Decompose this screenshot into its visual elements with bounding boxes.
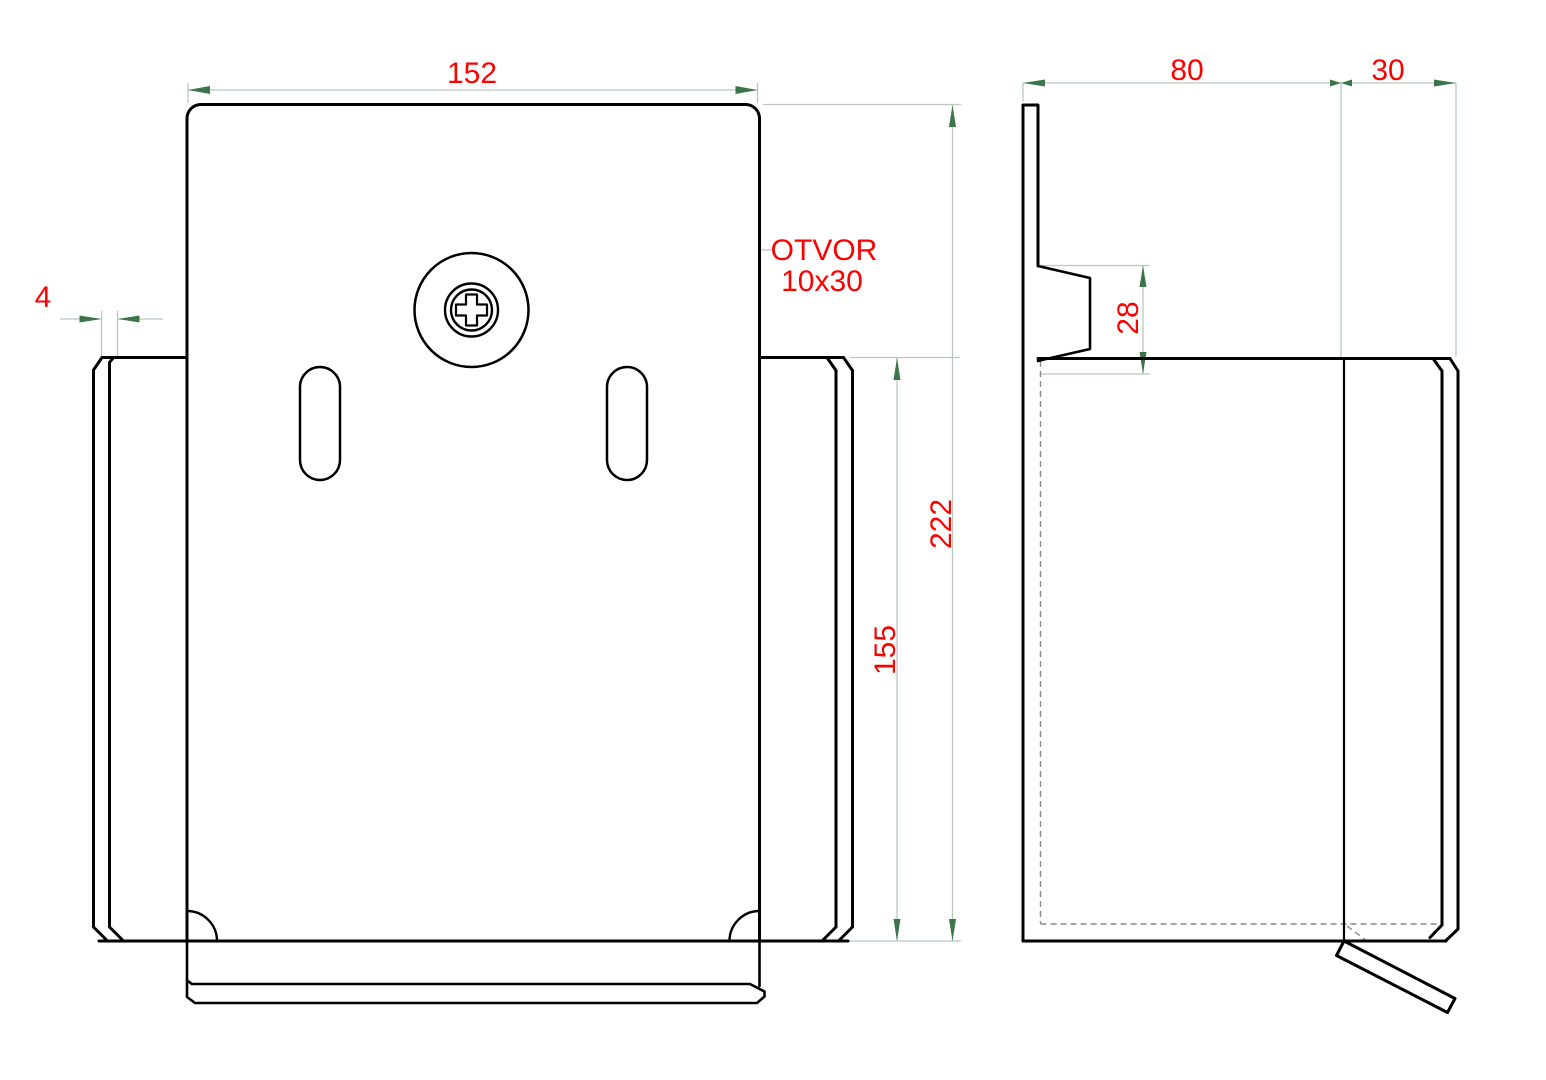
side-front-return-edge bbox=[1430, 359, 1458, 942]
side-bent-tab bbox=[1337, 941, 1456, 1013]
arrow-152-left-icon bbox=[188, 86, 210, 94]
arrow-222-bottom-icon bbox=[949, 919, 956, 941]
dim-total-height-label: 222 bbox=[925, 499, 958, 549]
dim-depth-lines bbox=[1023, 83, 1456, 357]
arrow-30-right-icon bbox=[1434, 80, 1456, 87]
front-bottom-lip bbox=[187, 941, 765, 1003]
front-left-flange-edge bbox=[94, 358, 188, 942]
front-main-plate-outline bbox=[187, 105, 760, 942]
dim-side-flange-height-label: 155 bbox=[869, 625, 902, 675]
dim-width-label: 152 bbox=[447, 57, 497, 90]
dim-dimple-height-label: 28 bbox=[1112, 301, 1145, 334]
slot-callout-line2: 10x30 bbox=[781, 265, 863, 298]
arrow-152-right-icon bbox=[736, 86, 758, 94]
engineering-drawing-canvas: 152 4 155 222 OTVOR 10x30 80 30 28 bbox=[0, 0, 1546, 1080]
arrow-155-bottom-icon bbox=[894, 919, 901, 941]
dim-front-return-label: 30 bbox=[1371, 54, 1404, 87]
arrow-80-left-icon bbox=[1023, 80, 1045, 87]
side-back-plate-edge bbox=[1023, 105, 1038, 941]
arrow-30-left-icon bbox=[1341, 80, 1352, 87]
slot-callout-line1: OTVOR bbox=[771, 234, 878, 267]
dim-side-flange-height-lines bbox=[850, 358, 960, 942]
technical-drawing-page: 152 4 155 222 OTVOR 10x30 80 30 28 bbox=[0, 0, 1546, 1080]
front-right-flange-edge bbox=[760, 358, 853, 942]
hidden-lines bbox=[1041, 361, 1442, 941]
arrow-80-right-icon bbox=[1330, 80, 1341, 87]
dim-flange-thickness-lines bbox=[60, 311, 163, 356]
arrow-155-top-icon bbox=[894, 358, 901, 380]
arrow-28-bottom-icon bbox=[1140, 352, 1147, 374]
arrow-222-top-icon bbox=[949, 105, 956, 127]
dim-flange-thickness-label: 4 bbox=[35, 281, 52, 314]
arrow-28-top-icon bbox=[1140, 266, 1147, 288]
arrow-4-left-icon bbox=[80, 316, 102, 323]
side-dimple-profile bbox=[1038, 266, 1090, 361]
hidden-bottom-flange-edges bbox=[1041, 361, 1442, 941]
dim-depth-label: 80 bbox=[1170, 54, 1203, 87]
arrow-4-right-icon bbox=[118, 316, 140, 323]
